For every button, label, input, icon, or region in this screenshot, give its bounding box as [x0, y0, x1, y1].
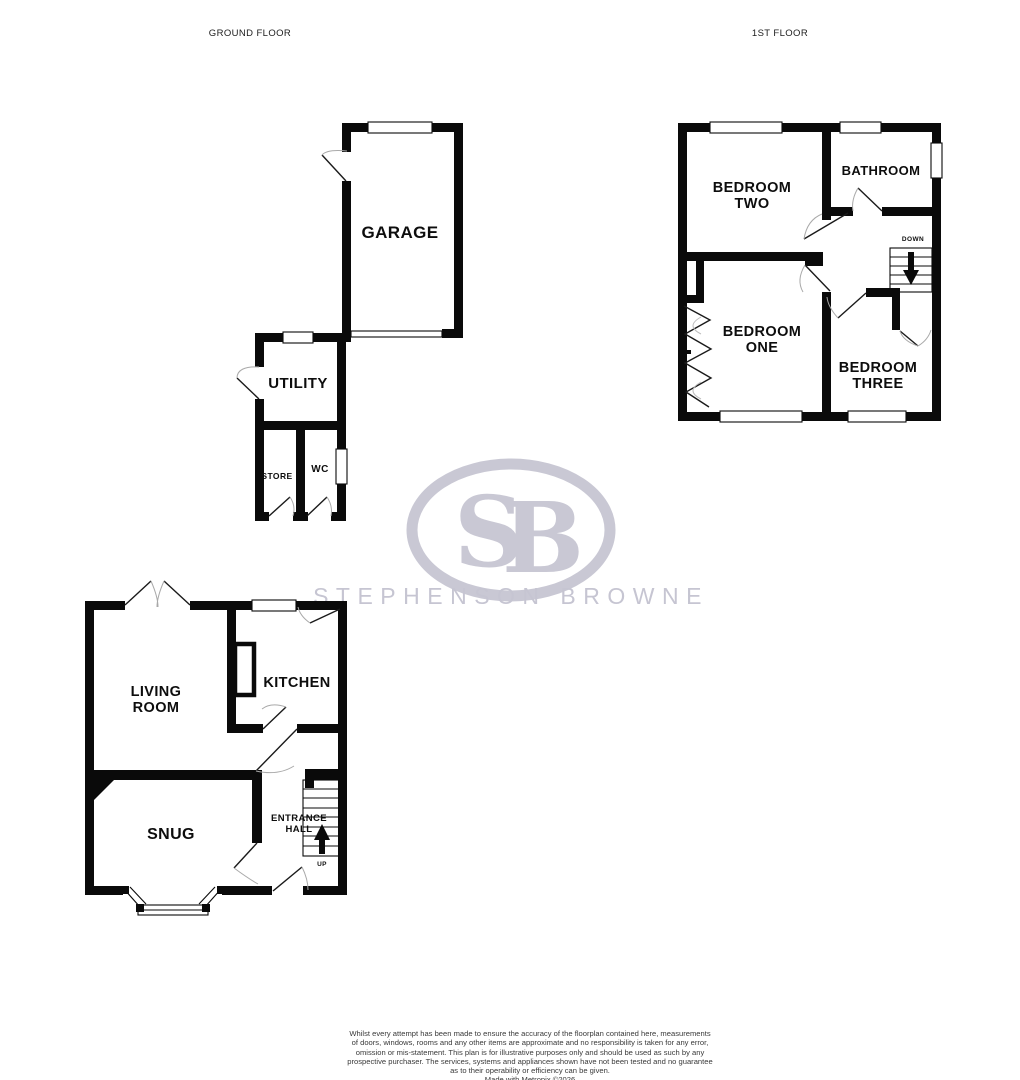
wardrobe-zigzag [683, 306, 711, 407]
french-door-swing [125, 581, 190, 607]
lobby-door-swings [256, 705, 297, 773]
bedroom-one-label-2: ONE [746, 340, 779, 356]
garage-label: GARAGE [361, 223, 438, 242]
disclaimer-line: prospective purchaser. The services, sys… [30, 1057, 1020, 1066]
disclaimer-made-with: Made with Metropix ©2026 [30, 1075, 1020, 1080]
bedroom-three-label-2: THREE [852, 376, 903, 392]
logo-wordmark: STEPHENSON BROWNE [313, 583, 709, 609]
first-floor-plan: BEDROOM TWO BATHROOM BEDROOM ONE BEDROOM… [678, 122, 942, 422]
bathroom-window-side [931, 143, 942, 178]
ground-floor-title: GROUND FLOOR [209, 28, 291, 39]
utility-plan: UTILITY STORE WC [237, 332, 347, 521]
disclaimer-line: Whilst every attempt has been made to en… [30, 1029, 1020, 1038]
ground-main-plan: LIVING ROOM KITCHEN SNUG ENTRANCE HALL U… [85, 581, 347, 915]
bedroom-two-label-2: TWO [734, 196, 769, 212]
floorplan-page: S B STEPHENSON BROWNE GROUND FLOOR 1ST F… [0, 0, 1020, 1080]
bedroom-one-window [720, 411, 802, 422]
walls [255, 333, 346, 521]
stairs-up-arrow-icon [314, 824, 330, 854]
chimney-breast [235, 644, 254, 695]
walls [85, 601, 347, 895]
first-floor-title: 1ST FLOOR [752, 28, 808, 39]
utility-label: UTILITY [268, 375, 327, 392]
garage-door-swing [322, 151, 347, 182]
store-door-swing [269, 497, 294, 516]
front-door-swing [273, 867, 308, 891]
bedroom-two-window [710, 122, 782, 133]
garage-plan: GARAGE [322, 122, 463, 342]
down-label: DOWN [902, 236, 924, 243]
watermark-logo: S B STEPHENSON BROWNE [313, 464, 709, 609]
kitchen-window [252, 600, 296, 611]
wc-label: WC [311, 464, 328, 475]
entrance-hall-label-2: HALL [286, 824, 313, 835]
snug-label: SNUG [147, 826, 195, 843]
bedroom-three-window [848, 411, 906, 422]
bedroom-two-label-1: BEDROOM [713, 180, 792, 196]
staircase-down [890, 248, 932, 292]
disclaimer-line: of doors, windows, rooms and any other i… [30, 1038, 1020, 1047]
bathroom-door-swing [853, 188, 882, 211]
living-room-label-2: ROOM [133, 700, 180, 716]
bathroom-window-top [840, 122, 881, 133]
snug-door-swing [234, 843, 258, 884]
bedroom-one-label-1: BEDROOM [723, 324, 802, 340]
utility-door-swing [237, 367, 259, 399]
living-room-label-1: LIVING [131, 684, 182, 700]
wc-door-swing [307, 497, 332, 516]
garage-opening [351, 331, 442, 337]
bathroom-label: BATHROOM [842, 163, 921, 178]
floorplan-svg: S B STEPHENSON BROWNE GROUND FLOOR 1ST F… [0, 0, 1020, 1080]
wc-window [336, 449, 347, 484]
garage-window [368, 122, 432, 133]
logo-monogram-b: B [502, 481, 584, 595]
disclaimer-line: as to their operability or efficiency ca… [30, 1066, 1020, 1075]
bay-window [120, 886, 226, 915]
up-label: UP [317, 861, 327, 868]
store-label: STORE [261, 471, 292, 481]
entrance-hall-label-1: ENTRANCE [271, 813, 327, 824]
disclaimer-text: Whilst every attempt has been made to en… [30, 1029, 1020, 1080]
kitchen-label: KITCHEN [263, 675, 330, 691]
bedroom-three-door-swing [900, 330, 931, 346]
utility-window [283, 332, 313, 343]
disclaimer-line: omission or mis-statement. This plan is … [30, 1048, 1020, 1057]
bedroom-three-label-1: BEDROOM [839, 360, 918, 376]
